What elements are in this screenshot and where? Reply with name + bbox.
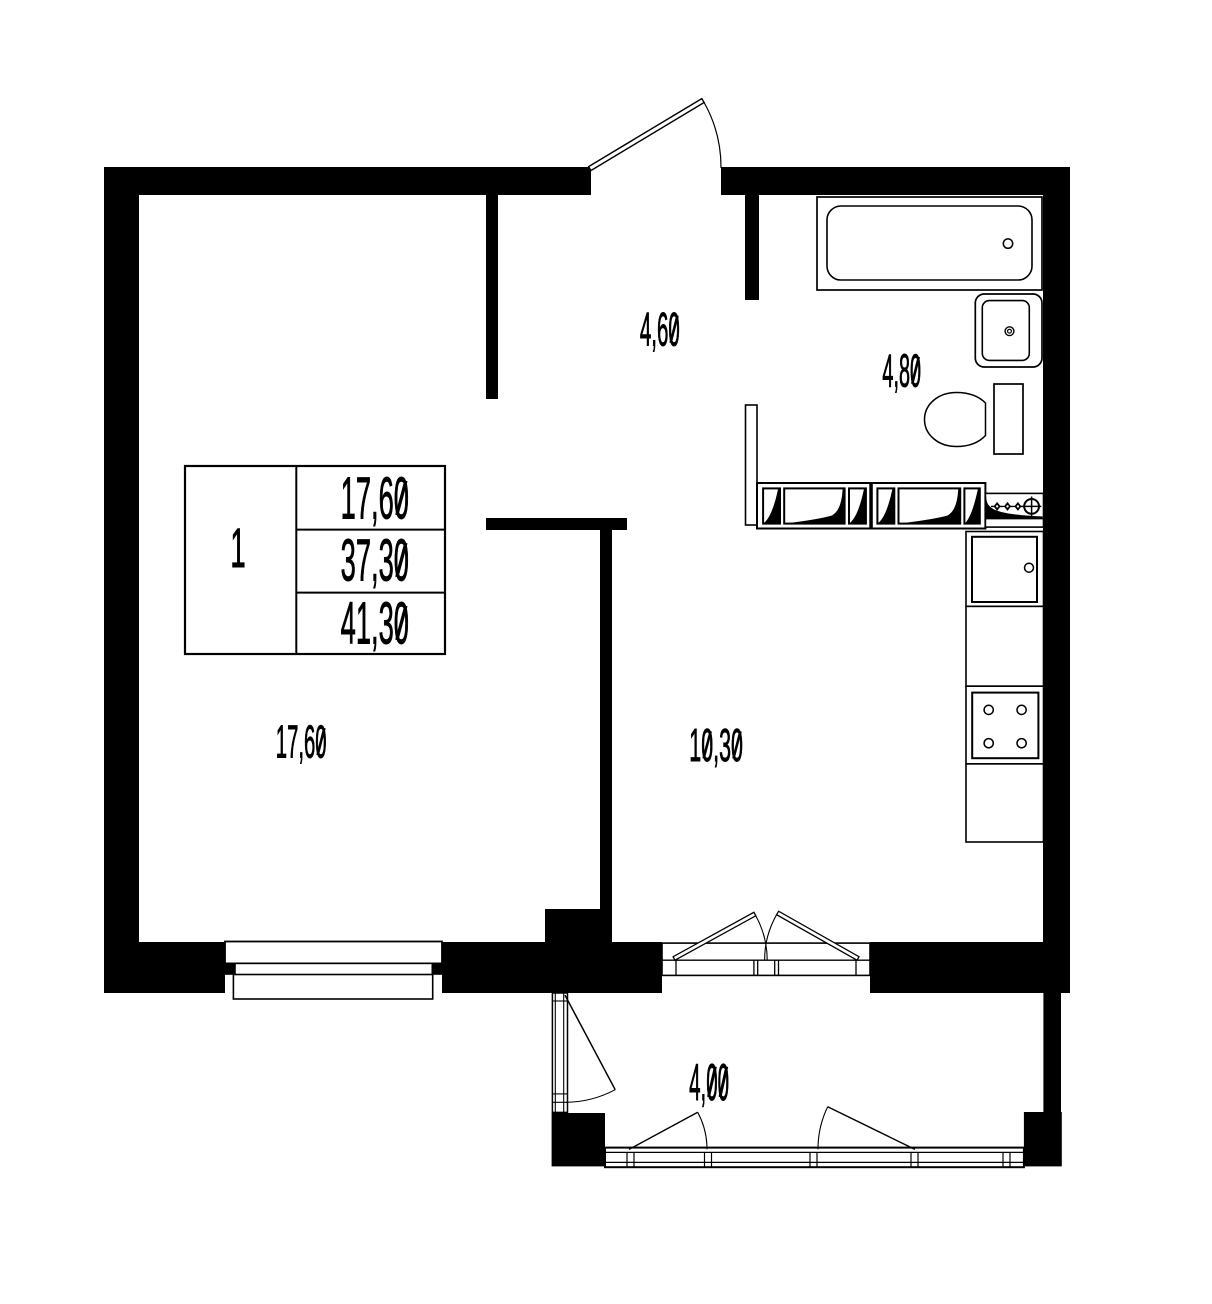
svg-text:17,60: 17,60 [341,464,409,531]
svg-text:10,30: 10,30 [689,719,743,772]
svg-text:1: 1 [230,519,245,580]
svg-text:41,30: 41,30 [341,589,409,656]
svg-text:17,60: 17,60 [276,715,327,768]
svg-text:37,30: 37,30 [341,526,409,593]
